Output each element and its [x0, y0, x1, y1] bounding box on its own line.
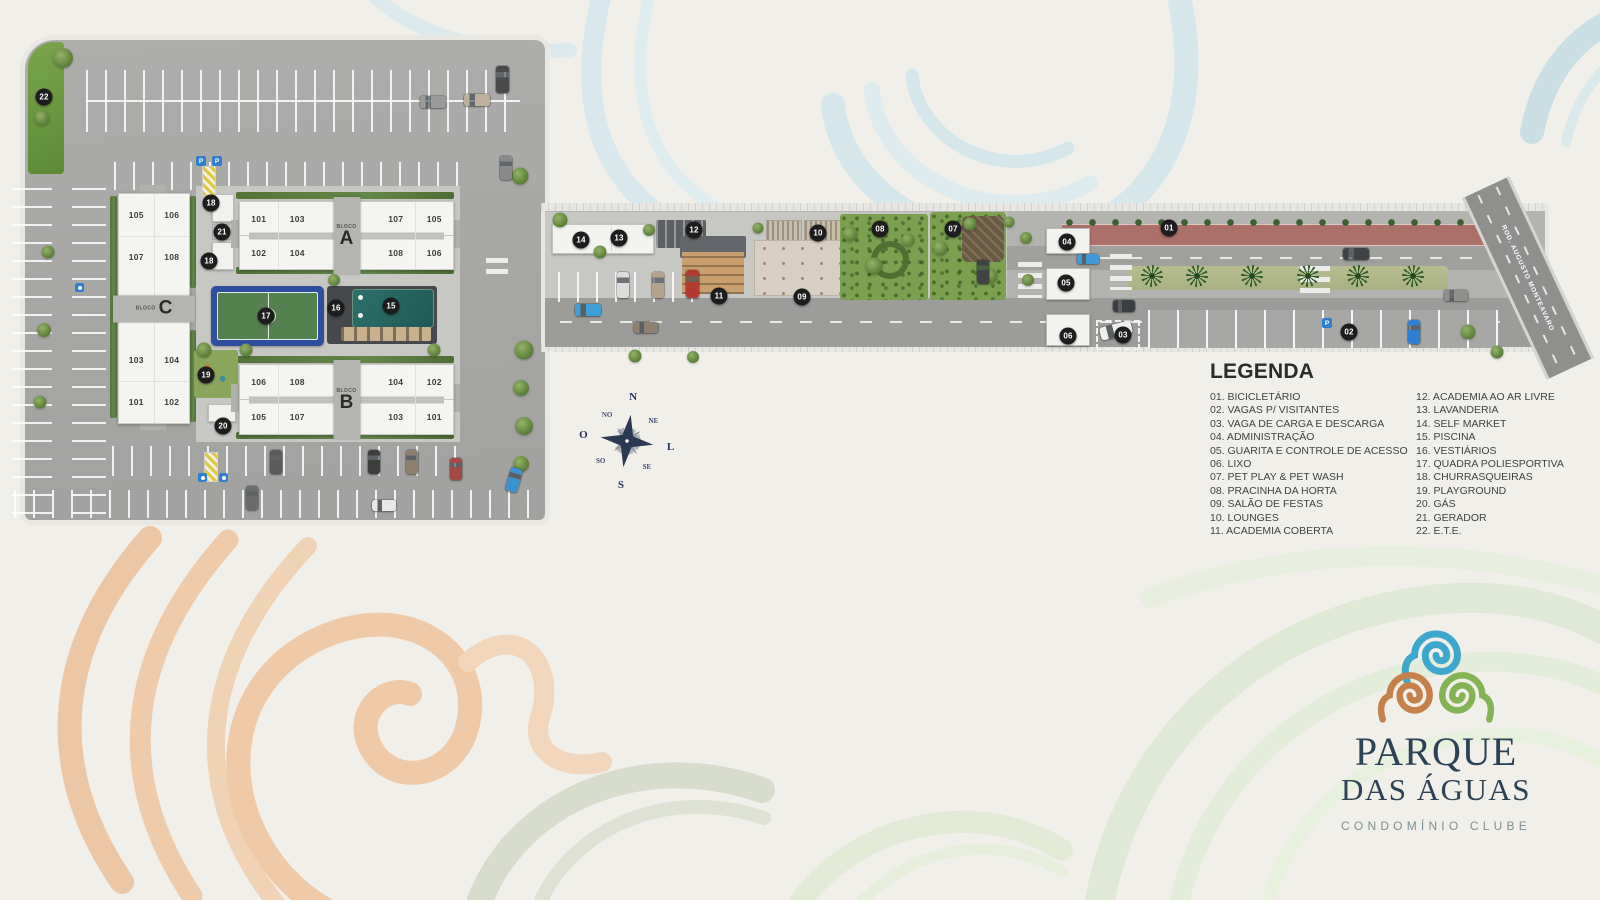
unit-cell: 106 [155, 194, 190, 236]
map-marker-06: 06 [1060, 328, 1077, 345]
compass-point: S [618, 479, 624, 491]
legend-item: 12. ACADEMIA AO AR LIVRE [1416, 391, 1564, 404]
tree [553, 213, 568, 228]
map-marker-17: 17 [258, 308, 275, 325]
map-marker-02: 02 [1341, 324, 1358, 341]
legend-item: 10. LOUNGES [1210, 512, 1398, 525]
unit-cell: 101 [240, 202, 278, 235]
map-marker-18: 18 [201, 253, 218, 270]
car [372, 500, 396, 511]
unit-cell: 106 [240, 365, 278, 399]
building-block-a: 101103107105 102104108106 BLOCO A [239, 201, 454, 270]
legend-column2: 12. ACADEMIA AO AR LIVRE13. LAVANDERIA14… [1416, 391, 1564, 538]
legend-item: 22. E.T.E. [1416, 525, 1564, 538]
unit-cell: 102 [240, 236, 278, 269]
car [1113, 300, 1135, 312]
tree [902, 234, 915, 247]
unit-cell: 101 [415, 400, 454, 434]
legend-item: 02. VAGAS P/ VISITANTES [1210, 404, 1398, 417]
tree [1491, 346, 1504, 359]
legend-item: 06. LIXO [1210, 458, 1398, 471]
legend-item: 08. PRACINHA DA HORTA [1210, 485, 1398, 498]
tree [1022, 274, 1034, 286]
palm-tree [1186, 265, 1208, 287]
tree [37, 323, 51, 337]
tree [629, 350, 642, 363]
sidewalk-top [541, 203, 1545, 211]
car [368, 450, 380, 474]
tree [964, 218, 977, 231]
car [246, 486, 258, 510]
compass-point: SO [596, 457, 605, 465]
parking-sign-icon: P [196, 156, 206, 166]
tree [328, 274, 340, 286]
bloco-word: BLOCO [136, 306, 156, 312]
car [575, 304, 601, 316]
map-marker-09: 09 [794, 289, 811, 306]
legend-item: 13. LAVANDERIA [1416, 404, 1564, 417]
block-c-letter: C [159, 300, 173, 317]
tree [197, 343, 212, 358]
legend: LEGENDA 01. BICICLETÁRIO02. VAGAS P/ VIS… [1210, 360, 1550, 538]
legend-title: LEGENDA [1210, 360, 1550, 384]
unit-cell: 105 [415, 202, 454, 235]
unit-cell: 105 [240, 400, 278, 434]
unit-cell: 105 [119, 194, 154, 236]
tree [933, 241, 948, 256]
tree [428, 344, 441, 357]
car [977, 260, 989, 284]
tree [1461, 325, 1476, 340]
logo: PARQUE DAS ÁGUAS CONDOMÍNIO CLUBE [1316, 628, 1556, 833]
tree [515, 417, 533, 435]
car [617, 272, 629, 298]
tree [687, 351, 699, 363]
tree [1004, 217, 1015, 228]
compass-point: N [629, 391, 637, 403]
legend-item: 20. GÁS [1416, 498, 1564, 511]
map-marker-04: 04 [1059, 234, 1076, 251]
logo-spirals-icon [1372, 628, 1500, 728]
umbrella-icon [358, 295, 363, 300]
map-marker-12: 12 [686, 222, 703, 239]
car [1077, 254, 1099, 264]
block-a-core: BLOCO A [333, 197, 360, 274]
compass-point: O [579, 429, 588, 441]
tree [513, 380, 529, 396]
legend-item: 18. CHURRASQUEIRAS [1416, 471, 1564, 484]
logo-tagline: CONDOMÍNIO CLUBE [1316, 819, 1556, 833]
map-marker-05: 05 [1058, 275, 1075, 292]
tree [515, 341, 534, 360]
tree [594, 246, 607, 259]
page: 101103107105 102104108106 BLOCO A 106108… [0, 0, 1600, 900]
umbrella-icon [358, 313, 363, 318]
visitor-parking [1148, 310, 1498, 348]
car [634, 322, 658, 333]
tree [512, 168, 529, 185]
block-a-letter: A [340, 230, 354, 247]
compass-point: L [667, 441, 674, 453]
map-marker-01: 01 [1161, 220, 1178, 237]
palm-tree [1241, 265, 1263, 287]
legend-item: 15. PISCINA [1416, 431, 1564, 444]
legend-item: 11. ACADEMIA COBERTA [1210, 525, 1398, 538]
map-marker-21: 21 [214, 224, 231, 241]
car [496, 66, 509, 93]
car [464, 94, 490, 106]
parking-band-left-outer [12, 182, 52, 514]
car [652, 272, 664, 298]
block-b-letter: B [340, 394, 354, 411]
legend-item: 17. QUADRA POLIESPORTIVA [1416, 458, 1564, 471]
pool-loungers [341, 327, 431, 341]
block-b-core: BLOCO B [333, 360, 360, 439]
legend-item: 16. VESTIÁRIOS [1416, 445, 1564, 458]
legend-item: 01. BICICLETÁRIO [1210, 391, 1398, 404]
tree [34, 396, 47, 409]
legend-item: 09. SALÃO DE FESTAS [1210, 498, 1398, 511]
tree [53, 48, 73, 68]
map-marker-20: 20 [215, 418, 232, 435]
car [1408, 320, 1420, 344]
compass-star-icon [583, 397, 671, 485]
hedge [190, 196, 196, 288]
car [420, 96, 446, 108]
map-marker-13: 13 [611, 230, 628, 247]
legend-item: 19. PLAYGROUND [1416, 485, 1564, 498]
logo-name-line2: DAS ÁGUAS [1316, 774, 1556, 807]
accessible-parking-icon [75, 283, 84, 292]
map-marker-11: 11 [711, 288, 728, 305]
logo-name-line1: PARQUE [1316, 732, 1556, 772]
legend-item: 07. PET PLAY & PET WASH [1210, 471, 1398, 484]
hatched-crossing [202, 166, 216, 196]
tree [753, 223, 764, 234]
accessible-parking-icon [219, 473, 228, 482]
map-marker-08: 08 [872, 221, 889, 238]
legend-item: 14. SELF MARKET [1416, 418, 1564, 431]
compass-point: SE [643, 463, 652, 471]
tree [35, 111, 50, 126]
palm-tree [1402, 265, 1424, 287]
car [270, 450, 282, 474]
unit-cell: 102 [415, 365, 454, 399]
tree [843, 227, 858, 242]
legend-column1: 01. BICICLETÁRIO02. VAGAS P/ VISITANTES0… [1210, 391, 1398, 538]
palm-median [1128, 266, 1448, 290]
car [406, 450, 418, 474]
tree [42, 246, 55, 259]
parking-band-top [86, 70, 520, 132]
map-marker-18: 18 [203, 195, 220, 212]
map-marker-14: 14 [573, 232, 590, 249]
compass-point: NE [648, 417, 658, 425]
car [450, 458, 462, 480]
unit-cell: 101 [119, 381, 154, 424]
crosswalk [1110, 254, 1132, 290]
map-marker-07: 07 [945, 221, 962, 238]
building-block-b: 106108104102 105107103101 BLOCO B [239, 364, 454, 435]
map-marker-10: 10 [810, 225, 827, 242]
tree [1020, 232, 1032, 244]
bike-lane-shrubs [1058, 216, 1508, 229]
car [686, 270, 699, 298]
legend-item: 03. VAGA DE CARGA E DESCARGA [1210, 418, 1398, 431]
map-marker-19: 19 [198, 367, 215, 384]
parking-band-left-inner [72, 182, 106, 514]
car [1444, 290, 1468, 301]
tree [643, 224, 655, 236]
legend-item: 04. ADMINISTRAÇÃO [1210, 431, 1398, 444]
palm-tree [1141, 265, 1163, 287]
block-c-core: BLOCO C [113, 295, 195, 322]
tree [240, 344, 253, 357]
upper-road-line [1100, 257, 1490, 259]
car [1343, 248, 1369, 260]
unit-cell: 102 [155, 381, 190, 424]
compass-point: NO [602, 411, 613, 419]
legend-item: 21. GERADOR [1416, 512, 1564, 525]
building-block-c: 105107103101 106108104102 BLOCO C [118, 193, 190, 424]
compass-rose: NNELSESSOONO [577, 391, 677, 491]
tree [866, 258, 883, 275]
map-marker-15: 15 [383, 298, 400, 315]
map-marker-03: 03 [1115, 327, 1132, 344]
unit-cell: 106 [415, 236, 454, 269]
parking-sign-icon: P [1322, 318, 1332, 328]
map-marker-22: 22 [36, 89, 53, 106]
palm-tree [1347, 265, 1369, 287]
palm-tree [1297, 265, 1319, 287]
map-marker-16: 16 [328, 300, 345, 317]
parking-sign-icon: P [212, 156, 222, 166]
crosswalk [486, 258, 508, 278]
accessible-parking-icon [198, 473, 207, 482]
legend-item: 05. GUARITA E CONTROLE DE ACESSO [1210, 445, 1398, 458]
car [500, 156, 512, 180]
